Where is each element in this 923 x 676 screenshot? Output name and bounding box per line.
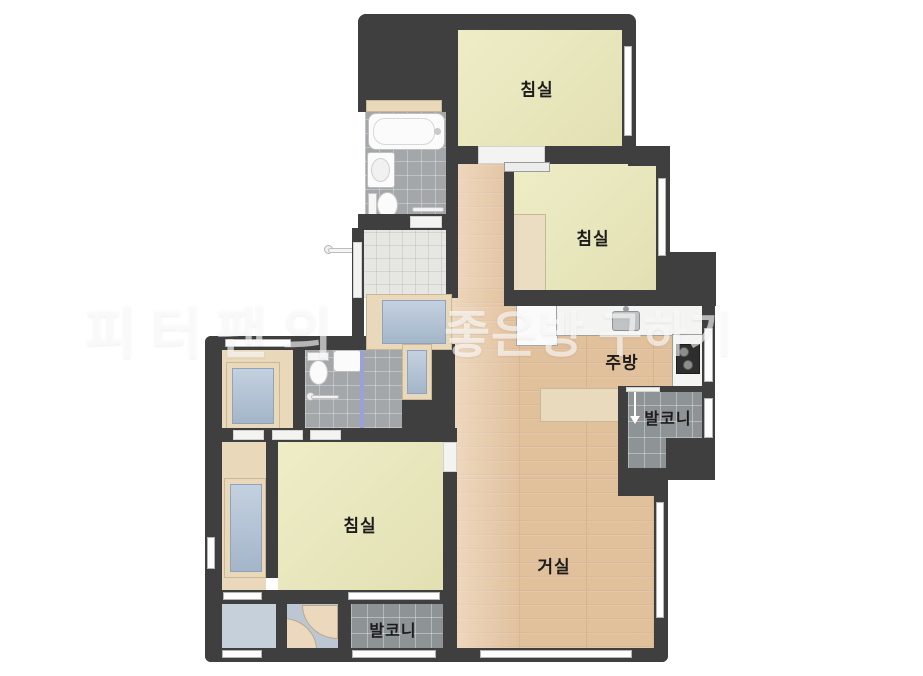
wall-closet-column — [266, 440, 278, 578]
bathtub-inner — [373, 118, 435, 145]
entry-floor — [363, 230, 446, 298]
living-right-window — [656, 502, 664, 618]
dressing-door — [233, 430, 264, 440]
shower-partition — [360, 350, 364, 428]
wall-balcony-left — [618, 386, 628, 480]
hall-closet-interior — [407, 350, 427, 394]
wall-left — [205, 336, 222, 662]
door-arrow-head-icon — [630, 416, 640, 424]
balcony-bottom-top-window — [348, 592, 440, 600]
kitchen-label: 주방 — [605, 349, 638, 374]
bathroom-top-door — [410, 216, 442, 228]
column-wardrobe-icon — [230, 484, 262, 572]
bath-shelf — [366, 100, 442, 112]
watermark-part1: 피터팬의 — [85, 306, 347, 362]
hall-door — [272, 430, 303, 440]
hallway-wood-floor — [452, 164, 506, 290]
dressing-wardrobe-icon — [232, 368, 274, 424]
wall-bedroom-right-bottom — [504, 290, 716, 306]
living-room-label: 거실 — [537, 553, 570, 578]
bath-top-door-leaf — [412, 207, 444, 212]
wall-utility-divider-1 — [276, 600, 287, 660]
wall-bedroom-right-left — [504, 160, 514, 306]
sliding-door-panel — [504, 162, 550, 172]
balcony-right-window — [704, 398, 713, 438]
utility-top-window — [223, 592, 262, 600]
living-bottom-window — [480, 650, 632, 658]
floorplan-canvas: 피터팬의 좋은방 구하기 침실 침실 주방 발코니 거실 침실 발코니 — [0, 0, 923, 676]
shower-bar-icon — [311, 395, 339, 399]
balcony-right-door — [626, 387, 660, 392]
wall-bedroom-top-bottom-a — [446, 146, 478, 164]
bathroom-mid-door — [310, 430, 341, 440]
bedroom-top-window — [624, 46, 632, 136]
door-arrow-icon — [634, 392, 636, 416]
utility-bottom-window — [222, 650, 262, 658]
watermark-part2: 좋은방 — [444, 310, 585, 360]
entry-closet-interior — [382, 300, 446, 344]
bedroom-left-door — [443, 442, 457, 472]
left-wall-window — [207, 537, 215, 569]
balcony-right-label: 발코니 — [644, 405, 691, 429]
sink-top-basin — [371, 158, 390, 182]
bedroom-top-label: 침실 — [520, 76, 553, 101]
dining-table-icon — [540, 388, 624, 422]
tub-faucet-icon — [434, 128, 441, 135]
balcony-ac-block — [666, 438, 702, 470]
wall-block-top-left — [358, 14, 452, 112]
bedroom-left-label: 침실 — [343, 512, 376, 537]
door-handle-icon — [328, 248, 355, 253]
bedroom-right-wardrobe-icon — [512, 214, 546, 298]
balcony-bottom-window — [352, 650, 436, 658]
utility-left-floor — [222, 602, 276, 650]
bedroom-right-label: 침실 — [576, 225, 609, 250]
wall-utility-divider-2 — [338, 600, 351, 662]
balcony-bottom-label: 발코니 — [369, 617, 416, 641]
front-door — [353, 242, 362, 298]
bedroom-right-window — [658, 178, 666, 256]
